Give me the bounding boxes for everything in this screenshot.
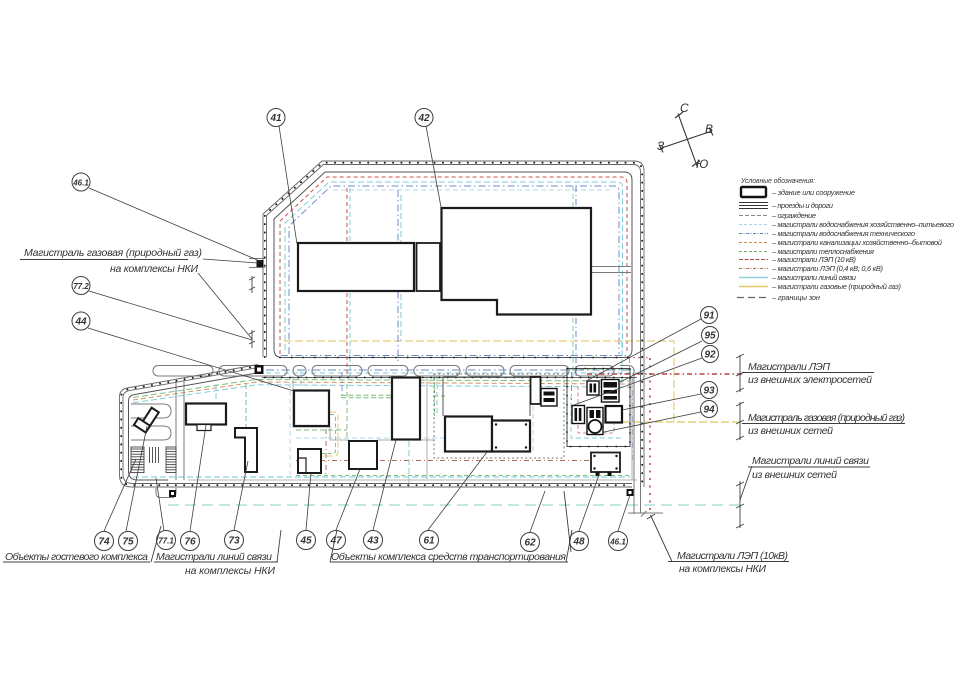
svg-text:77.1: 77.1 xyxy=(158,537,174,546)
svg-text:92: 92 xyxy=(704,350,716,361)
svg-text:94: 94 xyxy=(703,405,715,416)
svg-text:– магистрали водоснабжения хоз: – магистрали водоснабжения хозяйственно–… xyxy=(771,220,954,229)
svg-text:Магистрали ЛЭП: Магистрали ЛЭП xyxy=(748,361,830,373)
svg-text:на комплексы НКИ: на комплексы НКИ xyxy=(185,565,275,577)
svg-text:73: 73 xyxy=(228,536,240,547)
svg-text:Объекты комплекса средств тран: Объекты комплекса средств транспортирова… xyxy=(331,551,566,563)
svg-text:Магистрали линий связи: Магистрали линий связи xyxy=(156,551,272,563)
svg-text:на комплексы НКИ: на комплексы НКИ xyxy=(110,263,198,275)
svg-text:– границы зон: – границы зон xyxy=(771,293,820,302)
svg-text:62: 62 xyxy=(524,538,536,549)
svg-text:Ю: Ю xyxy=(696,157,708,171)
svg-text:Магистрали ЛЭП (10кВ): Магистрали ЛЭП (10кВ) xyxy=(677,550,788,562)
svg-text:75: 75 xyxy=(122,537,134,548)
svg-text:Объекты гостевого комплекса: Объекты гостевого комплекса xyxy=(5,551,148,563)
svg-text:46.1: 46.1 xyxy=(609,538,626,547)
svg-text:Магистраль газовая (природный: Магистраль газовая (природный газ) xyxy=(748,412,905,424)
svg-text:Условные обозначения:: Условные обозначения: xyxy=(740,176,815,185)
svg-text:– магистрали водоснабжения тех: – магистрали водоснабжения технического xyxy=(771,229,915,238)
svg-text:76: 76 xyxy=(184,537,196,548)
svg-text:41: 41 xyxy=(269,113,282,124)
svg-text:– проезды и дороги: – проезды и дороги xyxy=(771,201,833,210)
svg-text:З: З xyxy=(657,139,665,153)
svg-text:44: 44 xyxy=(74,317,87,328)
svg-text:48: 48 xyxy=(572,537,585,548)
svg-text:Магистрали линий связи: Магистрали линий связи xyxy=(752,455,869,467)
svg-text:В: В xyxy=(705,122,713,136)
svg-text:из внешних электросетей: из внешних электросетей xyxy=(748,374,872,386)
svg-text:– магистрали ЛЭП (0,4 кВ; 0,6: – магистрали ЛЭП (0,4 кВ; 0,6 кВ) xyxy=(771,264,884,273)
svg-text:91: 91 xyxy=(703,311,715,322)
svg-text:Магистраль газовая (природный: Магистраль газовая (природный газ) xyxy=(24,247,202,259)
svg-text:из внешних сетей: из внешних сетей xyxy=(752,469,837,481)
svg-text:– магистрали канализации хозяй: – магистрали канализации хозяйственно–бы… xyxy=(771,238,942,247)
svg-text:45: 45 xyxy=(299,536,312,547)
svg-text:– магистрали ЛЭП (10 кВ): – магистрали ЛЭП (10 кВ) xyxy=(771,255,857,264)
svg-text:– ограждение: – ограждение xyxy=(771,211,816,220)
svg-text:С: С xyxy=(680,101,689,115)
svg-text:на комплексы НКИ: на комплексы НКИ xyxy=(679,563,766,575)
svg-text:43: 43 xyxy=(366,536,379,547)
svg-text:42: 42 xyxy=(417,113,430,124)
svg-text:61: 61 xyxy=(423,536,435,547)
svg-text:95: 95 xyxy=(704,331,716,342)
svg-text:74: 74 xyxy=(98,537,110,548)
svg-text:из внешних сетей: из внешних сетей xyxy=(748,425,833,437)
svg-text:77.2: 77.2 xyxy=(73,282,89,291)
svg-text:93: 93 xyxy=(703,386,715,397)
svg-text:– магистрали газовые (природны: – магистрали газовые (природный газ) xyxy=(771,282,902,291)
svg-text:– магистрали линий связи: – магистрали линий связи xyxy=(771,273,856,282)
svg-text:– здание или сооружение: – здание или сооружение xyxy=(771,188,855,197)
svg-text:46.1: 46.1 xyxy=(72,179,89,188)
